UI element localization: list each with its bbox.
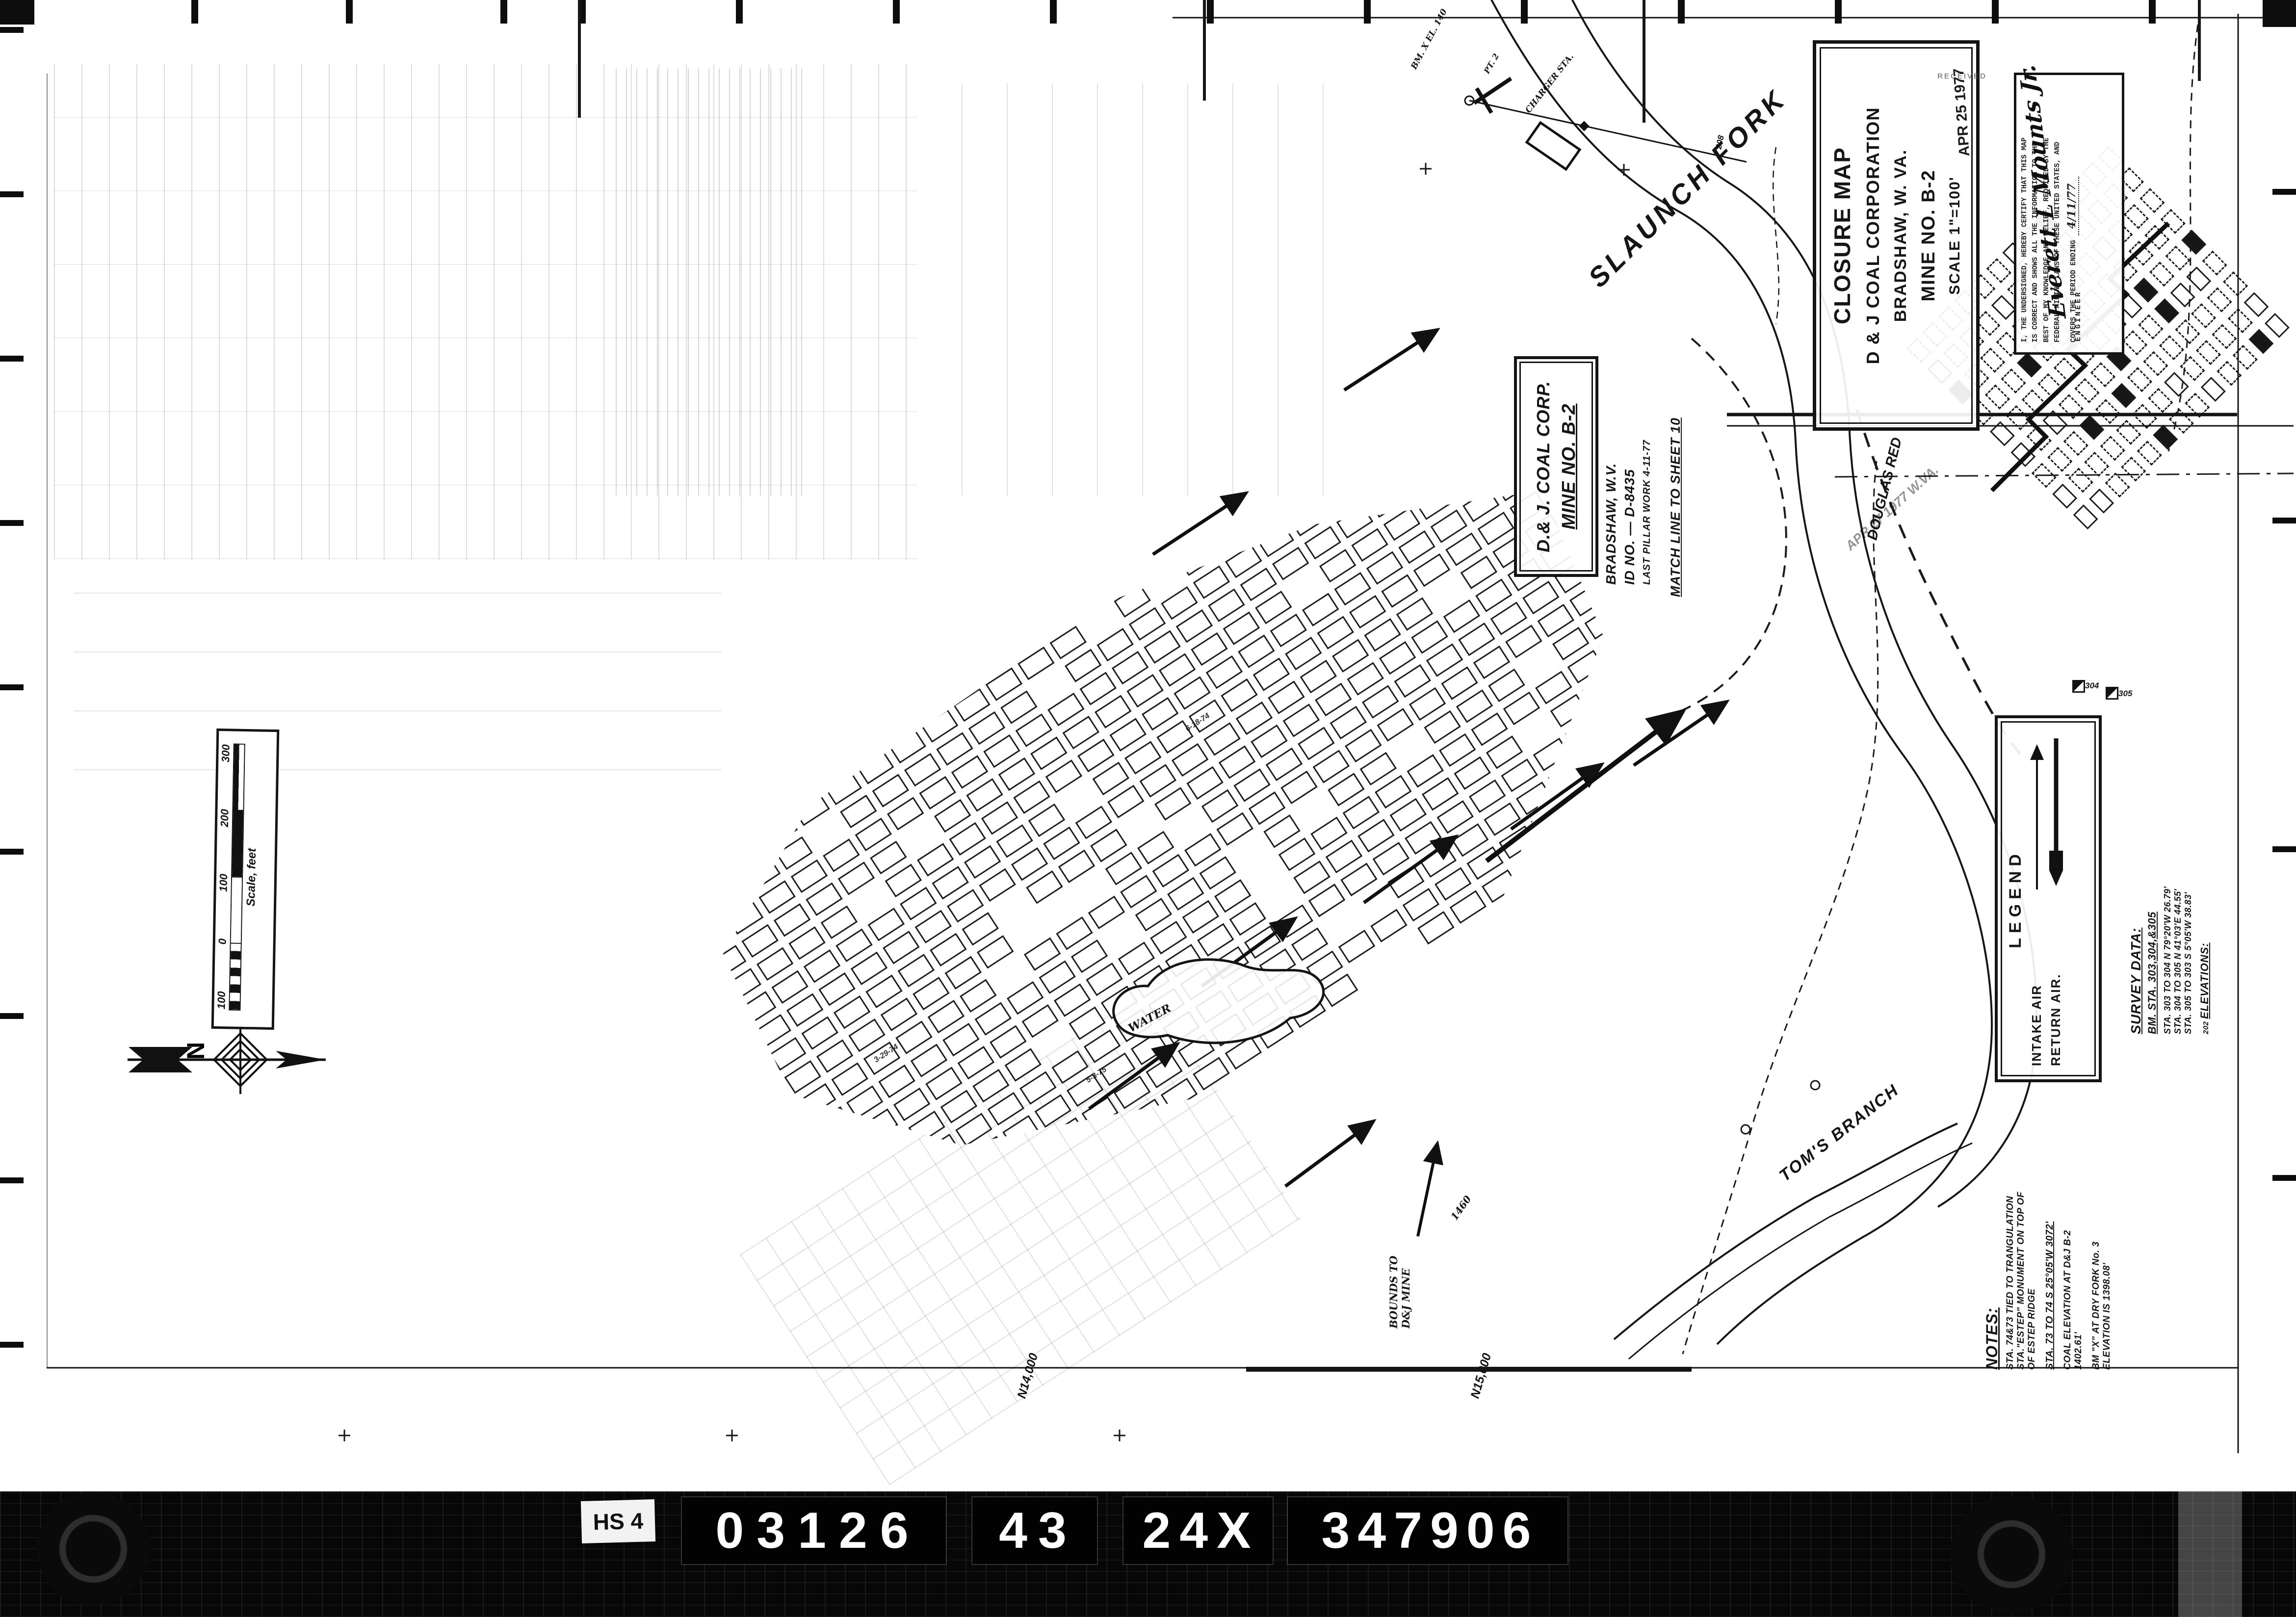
contour-dashed — [1773, 147, 1779, 324]
company-name: D & J COAL CORPORATION — [1863, 107, 1883, 365]
registration-mark — [0, 520, 24, 526]
registration-mark — [2276, 0, 2283, 24]
note-line: ELEVATION IS 1398.08' — [2102, 1144, 2113, 1370]
note-line: OF ESTEP RIDGE — [2027, 1144, 2037, 1370]
microfilm-hs-tag: HS 4 — [581, 1499, 655, 1543]
scale-bar-label: Scale, feet — [242, 731, 261, 1023]
title-block-box: CLOSURE MAP D & J COAL CORPORATION BRADS… — [1813, 40, 1980, 431]
film-band-light-streak — [2178, 1491, 2242, 1617]
grid-cross-ticks — [339, 163, 1630, 1441]
match-line-label: MATCH LINE TO SHEET 10 — [1668, 379, 1683, 597]
period-ending-date: 4/11/77 — [2065, 177, 2079, 236]
match-line-label-block: MATCH LINE TO SHEET 10 — [1668, 379, 1694, 597]
company-location: BRADSHAW, W. VA. — [1891, 149, 1910, 322]
registration-mark — [2272, 518, 2296, 523]
survey-course: STA. 304 TO 305 N 41°03'E 44.55' — [2173, 710, 2183, 1034]
registration-mark — [1992, 0, 1999, 24]
legend-return-air-label: RETURN AIR. — [2048, 973, 2063, 1066]
registration-mark — [1050, 0, 1057, 24]
note-line: 1402.61' — [2073, 1144, 2084, 1370]
survey-data-title: SURVEY DATA: — [2128, 710, 2144, 1034]
road-line — [1727, 415, 2294, 426]
bounds-annotation: BOUNDS TO D&J MINE — [1387, 1216, 1434, 1329]
microfilm-code-plate: 24X — [1123, 1497, 1273, 1564]
property-dash-dot-line — [1835, 473, 2294, 477]
survey-station-label: 305 — [2118, 689, 2132, 699]
survey-elevations-label: ELEVATIONS: — [2198, 942, 2211, 1019]
survey-benchmarks: BM. STA. 303,304,&305 — [2146, 710, 2159, 1034]
registration-mark — [0, 191, 24, 197]
survey-course: STA. 303 TO 304 N 79°20'W 26.79' — [2163, 710, 2173, 1034]
legend-intake-air-label: INTAKE AIR — [2029, 985, 2044, 1066]
registration-mark — [0, 684, 24, 690]
survey-station-flag — [2072, 680, 2085, 693]
survey-course: STA. 305 TO 303 S 5°05'W 38.83' — [2183, 710, 2193, 1034]
registration-mark — [2272, 846, 2296, 852]
received-date-stamp: APR 25 1977 — [1951, 68, 1973, 157]
notes-block: NOTES: STA. 74&73 TIED TO TRANGULATION S… — [1983, 1144, 2189, 1370]
registration-mark — [0, 849, 24, 855]
last-pillar-work: LAST PILLAR WORK 4-11-77 — [1642, 374, 1653, 585]
north-arrow-diamond — [214, 1025, 266, 1094]
mine-number: MINE NO. B-2 — [1918, 170, 1939, 302]
match-line-dashed-arc — [1678, 339, 1786, 712]
douglas-red-dashed-line — [1857, 410, 2021, 756]
registration-mark — [736, 0, 743, 24]
mine-id-company: D.& J. COAL CORP. — [1533, 381, 1554, 552]
mine-location: BRADSHAW, W.V. — [1603, 374, 1619, 585]
microfilm-code-plate: 43 — [972, 1497, 1097, 1564]
survey-station-label: 304 — [2085, 681, 2099, 691]
registration-mark — [1521, 0, 1528, 24]
legend-box: LEGEND INTAKE AIR RETURN AIR. — [1995, 715, 2102, 1082]
water-pool-outline — [1114, 960, 1324, 1043]
intake-air-arrow-icon — [2030, 731, 2044, 893]
registration-mark — [1678, 0, 1685, 24]
note-line: STA. 73 TO 74 S 25°05'W 3072' — [2044, 1144, 2056, 1370]
survey-station-flag — [2106, 687, 2118, 700]
registration-mark — [0, 1013, 24, 1019]
registration-mark — [2198, 0, 2201, 81]
registration-mark — [27, 0, 34, 24]
survey-data-block: SURVEY DATA: BM. STA. 303,304,&305 STA. … — [2128, 710, 2229, 1034]
certification-box: I, THE UNDERSIGNED, HEREBY CERTIFY THAT … — [2014, 73, 2124, 355]
legend-title: LEGEND — [2006, 723, 2025, 1075]
note-line: STA. 74&73 TIED TO TRANGULATION — [2005, 1144, 2016, 1370]
note-line: STA."ESTEP" MONUMENT ON TOP OF — [2016, 1144, 2027, 1370]
mine-id-box: D.& J. COAL CORP. MINE NO. B-2 — [1514, 356, 1598, 577]
map-scale: SCALE 1"=100' — [1947, 176, 1963, 295]
notes-title: NOTES: — [1983, 1144, 2001, 1370]
return-air-arrow-icon — [2049, 731, 2063, 893]
contour-dashed — [2168, 25, 2198, 451]
elevation-mark: 202 — [2202, 1021, 2210, 1034]
registration-mark — [1207, 0, 1214, 24]
scale-bar-box: 1000100200300 Scale, feet — [211, 729, 280, 1030]
north-letter: N — [182, 1042, 209, 1060]
registration-mark — [2149, 0, 2156, 24]
registration-mark — [1835, 0, 1842, 24]
registration-mark — [0, 27, 24, 33]
stream-toms-branch — [1614, 1081, 1972, 1359]
contour-dashed — [1683, 461, 1878, 1354]
microfilm-code-plate: 03126 — [682, 1497, 946, 1564]
registration-mark — [578, 0, 581, 118]
mine-info-block: BRADSHAW, W.V. ID NO. — D-8435 LAST PILL… — [1603, 374, 1672, 585]
mine-id-mine: MINE NO. B-2 — [1559, 404, 1580, 530]
registration-mark — [346, 0, 353, 24]
received-stamp: RECEIVED — [1937, 72, 1987, 80]
registration-mark — [2272, 189, 2296, 195]
registration-mark — [0, 1177, 24, 1183]
note-line: BM "X" AT DRY FORK No. 3 — [2091, 1144, 2102, 1370]
registration-mark — [0, 356, 24, 362]
scanned-mine-map-sheet: 3-29-74 5-3-75 6-18-74 — [0, 0, 2296, 1617]
film-reel-blob — [1950, 1495, 2073, 1613]
microfilm-code-plate: 347906 — [1288, 1497, 1567, 1564]
registration-mark — [191, 0, 198, 24]
north-arrow: N — [114, 1021, 332, 1095]
registration-mark — [1643, 0, 1645, 123]
registration-mark — [893, 0, 900, 24]
registration-mark — [500, 0, 507, 24]
registration-mark — [2272, 1175, 2296, 1181]
mine-id-number: ID NO. — D-8435 — [1622, 374, 1638, 585]
map-title: CLOSURE MAP — [1829, 147, 1855, 324]
registration-mark — [1364, 0, 1371, 24]
registration-mark — [0, 1342, 24, 1348]
note-line: COAL ELEVATION AT D&J B-2 — [2062, 1144, 2073, 1370]
film-reel-blob — [37, 1492, 150, 1605]
registration-mark — [1203, 0, 1206, 101]
